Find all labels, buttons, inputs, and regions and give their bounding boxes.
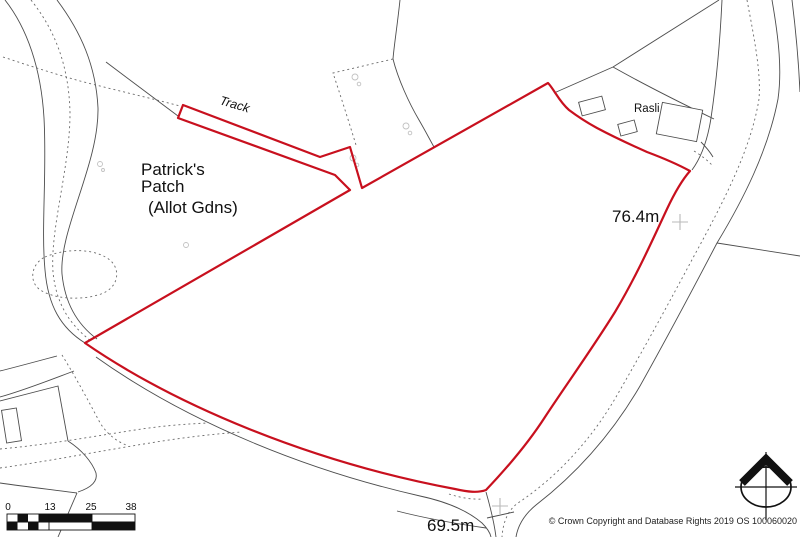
map-canvas: Track Patrick's Patch (Allot Gdns) Rasli… bbox=[0, 0, 800, 537]
road-edge bbox=[692, 0, 722, 170]
path-dotted bbox=[0, 432, 242, 468]
elevation-label-northeast: 76.4m bbox=[612, 207, 659, 226]
fence-line bbox=[68, 441, 96, 492]
building bbox=[656, 102, 702, 141]
road-centerline-dotted bbox=[502, 0, 759, 537]
road-edge bbox=[0, 356, 57, 371]
scale-tick-label: 25 bbox=[85, 502, 97, 513]
road-edge bbox=[516, 0, 780, 537]
fence-line bbox=[0, 483, 77, 493]
road-edge bbox=[5, 0, 85, 343]
os-map: Track Patrick's Patch (Allot Gdns) Rasli… bbox=[0, 0, 800, 537]
field-boundary-dotted bbox=[333, 59, 393, 145]
fence-line bbox=[106, 62, 178, 116]
rasli-label: Rasli bbox=[634, 103, 660, 115]
building bbox=[2, 408, 22, 443]
road-edge bbox=[57, 0, 98, 339]
allotment-label-line3: (Allot Gdns) bbox=[148, 198, 238, 217]
tree-symbol bbox=[184, 243, 189, 248]
copyright-attribution: © Crown Copyright and Database Rights 20… bbox=[549, 516, 797, 526]
grid-cross bbox=[492, 498, 508, 514]
grid-crosses bbox=[492, 214, 688, 514]
field-boundary bbox=[554, 67, 613, 93]
path-dotted bbox=[62, 355, 126, 445]
tree-symbol bbox=[98, 162, 105, 172]
elevation-label-south: 69.5m bbox=[427, 516, 474, 535]
field-boundary bbox=[717, 243, 800, 256]
road-edge bbox=[0, 371, 74, 397]
allotment-label-line2: Patch bbox=[141, 177, 184, 196]
road-centerline-dotted bbox=[31, 0, 91, 341]
boundary-red-outline bbox=[85, 83, 690, 492]
field-boundary bbox=[792, 0, 800, 92]
scale-tick-label: 0 bbox=[5, 502, 11, 513]
scale-tick-label: 13 bbox=[44, 502, 56, 513]
road-network bbox=[0, 0, 800, 537]
building bbox=[618, 120, 638, 136]
scale-bar-blocks bbox=[7, 514, 135, 530]
path-dotted bbox=[449, 494, 483, 499]
track-label: Track bbox=[218, 93, 252, 115]
grid-cross bbox=[672, 214, 688, 230]
scale-tick-label: 38 bbox=[125, 502, 137, 513]
tree-symbol bbox=[403, 123, 412, 135]
compass-north-icon bbox=[735, 452, 797, 520]
tree-symbol bbox=[352, 74, 361, 86]
map-labels: Track Patrick's Patch (Allot Gdns) Rasli… bbox=[141, 93, 660, 535]
field-boundary bbox=[613, 0, 719, 67]
field-boundary bbox=[393, 0, 434, 147]
path-dotted bbox=[3, 57, 180, 106]
road-edge bbox=[96, 357, 491, 537]
path-dotted bbox=[0, 423, 208, 449]
building bbox=[579, 96, 606, 116]
road-edge bbox=[486, 492, 496, 537]
